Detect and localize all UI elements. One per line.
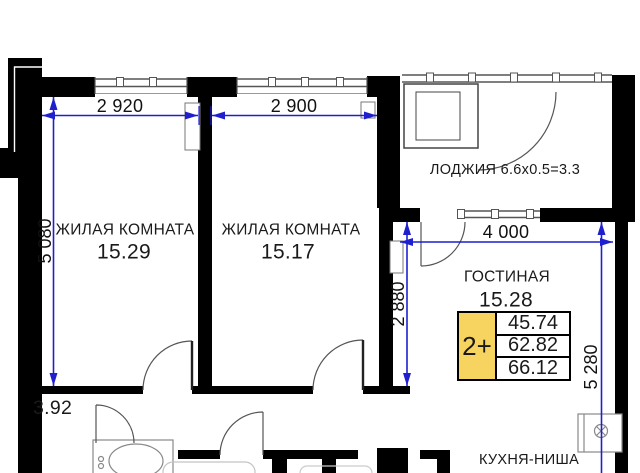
apartment-areas: 45.74 62.82 66.12 — [495, 311, 571, 381]
room2-area: 15.17 — [261, 242, 315, 263]
wall-kitchen-block — [377, 448, 408, 473]
balcony-unit-panel — [416, 92, 460, 140]
room2-label: ЖИЛАЯ КОМНАТА — [222, 222, 361, 238]
wall-topleft-stub — [8, 58, 42, 158]
apartment-info-table: 2+ 45.74 62.82 66.12 — [457, 311, 571, 381]
apartment-type-badge: 2+ — [457, 311, 497, 381]
wall-loggia-left — [377, 87, 400, 208]
wall-window-pier — [187, 77, 237, 97]
wall-loggia-bottom-right — [540, 208, 612, 222]
dim-right-height: 5 280 — [582, 344, 600, 389]
dim-living-width: 4 000 — [483, 223, 530, 241]
dim-hall-height: 2 880 — [389, 281, 407, 326]
wall-corridor-stub-2 — [272, 459, 287, 473]
wall-corridor-4 — [263, 450, 323, 459]
wall-loggia-bottom-left — [390, 208, 420, 222]
radiator-living — [390, 241, 403, 273]
wall-corridor-stub-4 — [437, 459, 450, 473]
floor-plan: ЖИЛАЯ КОМНАТА 15.29 ЖИЛАЯ КОМНАТА 15.17 … — [0, 0, 640, 473]
room1-label: ЖИЛАЯ КОМНАТА — [56, 222, 195, 238]
dim-room2-width: 2 900 — [271, 97, 318, 115]
sink — [93, 440, 173, 473]
bathtub-outline — [163, 462, 255, 473]
wall-corridor-3 — [178, 450, 220, 459]
loggia-label: ЛОДЖИЯ 6.6x0.5=3.3 — [430, 163, 580, 178]
wall-rooms-bottom-2 — [192, 386, 313, 394]
dim-left-height: 5 080 — [36, 218, 54, 263]
fixtures — [93, 102, 622, 473]
room1-area: 15.29 — [97, 242, 151, 263]
door-arc-room2 — [313, 340, 363, 390]
wall-corridor-6 — [420, 450, 450, 459]
window-room1 — [95, 79, 187, 87]
hall-area: 3.92 — [33, 399, 72, 419]
door-arc-room1 — [143, 341, 192, 390]
total-area: 66.12 — [495, 356, 571, 381]
kitchen-label: КУХНЯ-НИША — [479, 453, 579, 468]
living-area: 15.28 — [479, 290, 533, 311]
niche-room1 — [185, 103, 200, 150]
wall-rooms-bottom-3 — [363, 386, 410, 394]
wall-rooms-bottom-1 — [42, 386, 143, 394]
area-without-loggia: 62.82 — [495, 334, 571, 359]
dim-room1-width: 2 920 — [97, 97, 144, 115]
wall-left — [18, 170, 42, 473]
door-arc-living-from-loggia — [421, 222, 465, 266]
wall-loggia-right — [612, 75, 635, 222]
kitchen-appliance — [578, 414, 622, 452]
door-arc-corridor — [220, 412, 263, 455]
balcony-door-unit — [404, 84, 478, 148]
door-arc-bathroom — [96, 405, 134, 443]
living-area-total: 45.74 — [495, 311, 571, 336]
door-arc-loggia-entry — [478, 92, 556, 170]
wall-corridor-stub-3 — [322, 450, 336, 473]
wall-top-arm — [42, 77, 95, 97]
walls — [0, 58, 635, 473]
living-label: ГОСТИНАЯ — [464, 269, 550, 285]
